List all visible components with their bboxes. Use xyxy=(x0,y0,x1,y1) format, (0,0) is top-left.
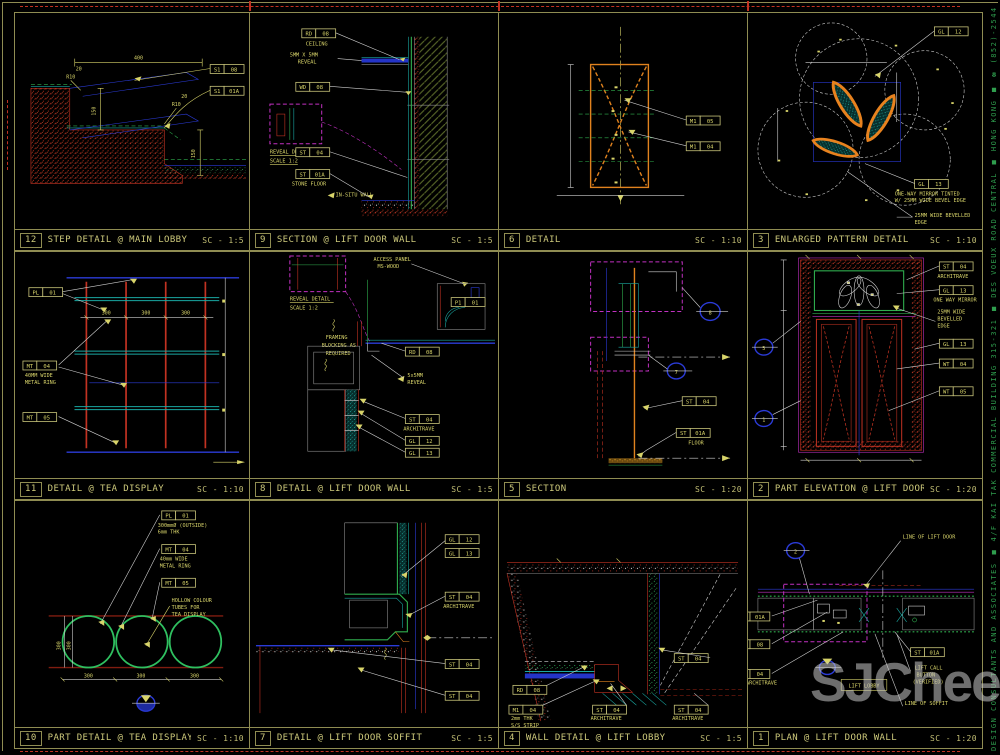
dim-text: 300 xyxy=(67,641,73,650)
ref-tags: RD08 5x5MM REVEAL ST04 ARCHITRAVE GL12 G… xyxy=(356,343,440,457)
svg-text:05: 05 xyxy=(43,415,50,421)
svg-text:ST: ST xyxy=(449,595,456,601)
annotation-text: 6mm THK xyxy=(158,530,181,536)
svg-text:05: 05 xyxy=(182,581,189,587)
detail-title: SECTION xyxy=(526,484,567,494)
svg-text:12: 12 xyxy=(426,439,433,445)
detail-scale: SC - 1:10 xyxy=(197,485,244,494)
ref-tag: GL12 xyxy=(405,436,439,445)
detail-scale: SC - 1:20 xyxy=(695,485,742,494)
panel-6-detail: M105 M104 6 DETAIL SC - 1:10 xyxy=(498,12,748,251)
svg-text:01A: 01A xyxy=(755,615,766,621)
panel-title-bar: 3 ENLARGED PATTERN DETAIL SC - 1:10 xyxy=(748,229,982,250)
svg-text:01A: 01A xyxy=(229,89,240,95)
section-linework xyxy=(591,262,683,465)
svg-text:08: 08 xyxy=(231,67,238,73)
ref-tag: M104 xyxy=(509,705,543,714)
svg-text:01: 01 xyxy=(49,290,56,296)
svg-text:01: 01 xyxy=(472,300,479,306)
annotation-text: 5x5MM xyxy=(407,373,423,379)
drawing-soffit: GL12 GL13 ST04 ARCHITRAVE ST04 ST04 xyxy=(250,501,498,728)
svg-text:S1: S1 xyxy=(214,89,221,95)
detail-scale: SC - 1:10 xyxy=(930,236,977,245)
annotation-text: TUBES FOR xyxy=(172,605,201,611)
svg-text:04: 04 xyxy=(426,417,433,423)
panel-title-bar: 11 DETAIL @ TEA DISPLAY SC - 1:10 xyxy=(15,478,249,499)
annotation-text: MS-WOOD xyxy=(377,264,399,270)
svg-text:RD: RD xyxy=(517,688,524,694)
detail-number: 10 xyxy=(20,731,42,746)
reveal-detail-box: REVEAL DETAIL SCALE 1:2 xyxy=(270,104,401,169)
detail-title: STEP DETAIL @ MAIN LOBBY xyxy=(48,235,188,245)
detail-number: 1 xyxy=(753,731,769,746)
architrave-profile: P101 xyxy=(437,284,485,330)
door-frame xyxy=(799,258,924,455)
svg-text:MT: MT xyxy=(165,547,172,553)
callout-number: 1 xyxy=(762,418,765,424)
panel-11-tea-display-detail: 300 300 300 PL01 MT04 40MM WIDE METAL RI… xyxy=(14,251,250,500)
dim-text: 150 xyxy=(191,149,197,158)
svg-text:ST: ST xyxy=(596,708,603,714)
drawing-section: 8 7 ST04 ST01A FLOOR xyxy=(499,252,747,479)
svg-text:08: 08 xyxy=(534,688,541,694)
annotation-text: STONE FLOOR xyxy=(292,181,327,187)
ref-tag: RD08 xyxy=(405,347,439,356)
dim-text: R10 xyxy=(172,102,181,108)
dim-text: 300 xyxy=(57,641,63,650)
ref-tag: GL13 xyxy=(939,286,973,295)
red-tick xyxy=(249,1,251,11)
detail-scale: SC - 1:5 xyxy=(451,236,493,245)
left-margin-red-text xyxy=(7,100,8,170)
annotation-text: SCALE 1:2 xyxy=(270,159,298,165)
section-marker xyxy=(132,695,160,711)
dim-text: 20 xyxy=(181,94,187,100)
svg-text:04: 04 xyxy=(466,662,473,668)
ref-tag: ST04 xyxy=(939,262,973,271)
ref-tag: ST04 xyxy=(445,592,479,601)
detail-number: 7 xyxy=(255,731,271,746)
detail-number: 8 xyxy=(255,482,271,497)
svg-text:M1: M1 xyxy=(690,145,697,151)
drawing-elevation: 5 1 ST04 ARCHITRAVE GL13 ONE WAY MIRROR … xyxy=(748,252,982,479)
svg-text:ST: ST xyxy=(409,417,416,423)
sheet-left-border xyxy=(2,2,3,751)
ref-tag: P101 xyxy=(451,298,485,307)
sheet-bottom-red-dashes xyxy=(20,751,960,752)
red-tick xyxy=(747,1,749,11)
svg-text:01: 01 xyxy=(182,514,189,520)
svg-text:04: 04 xyxy=(757,672,764,678)
watermark: SJCheese xyxy=(810,650,1000,714)
panel-2-lift-door-elevation: 5 1 ST04 ARCHITRAVE GL13 ONE WAY MIRROR … xyxy=(747,251,983,500)
panel-5-section: 8 7 ST04 ST01A FLOOR 5 SECTION SC - 1:20 xyxy=(498,251,748,500)
svg-text:GL: GL xyxy=(943,342,950,348)
svg-text:GL: GL xyxy=(409,439,416,445)
annotation-text: EDGE xyxy=(937,323,949,329)
svg-text:05: 05 xyxy=(960,390,967,396)
drawing-detail: REVEAL DETAIL SCALE 1:2 ACCESS PANEL MS-… xyxy=(250,252,498,479)
ref-tag: ST04 xyxy=(445,660,479,669)
detail-title: PLAN @ LIFT DOOR WALL xyxy=(775,733,897,743)
detail-title: PART DETAIL @ TEA DISPLAY xyxy=(48,733,191,743)
svg-text:08: 08 xyxy=(322,32,329,38)
ref-tag: M104 xyxy=(686,142,720,151)
annotation-text: ACCESS PANEL xyxy=(374,257,411,263)
annotation-text: REVEAL DETAIL xyxy=(290,297,330,303)
annotation-text: REVEAL xyxy=(298,60,317,66)
detail-title: SECTION @ LIFT DOOR WALL xyxy=(277,235,417,245)
ref-tags: RD08 CEILING 5MM X 5MM REVEAL WD08 ST04 … xyxy=(290,29,412,199)
callout-number: 5 xyxy=(762,346,765,352)
detail-number: 6 xyxy=(504,233,520,248)
svg-text:RD: RD xyxy=(409,350,416,356)
svg-text:S1: S1 xyxy=(214,67,221,73)
sheet-top-red-dashes xyxy=(20,6,960,7)
wall-hatch xyxy=(362,37,450,216)
panel-4-lift-lobby-wall-detail: RD08 M104 2mm THK S/S STRIP ST04 ARCHITR… xyxy=(498,500,748,749)
svg-text:M1: M1 xyxy=(690,119,697,125)
drawing-tubes: 300 300 300 300 300 PL01 300mmØ (OUTSIDE… xyxy=(15,501,249,728)
detail-scale: SC - 1:20 xyxy=(930,485,977,494)
ref-tag: GL13 xyxy=(939,339,973,348)
annotation-text: 2mm THK xyxy=(511,716,534,722)
panel-title-bar: 5 SECTION SC - 1:20 xyxy=(499,478,747,499)
drawing-section: REVEAL DETAIL SCALE 1:2 RD08 CEILING 5MM… xyxy=(250,13,498,230)
ref-tag: PL01 xyxy=(162,511,196,520)
annotation-text: ONE WAY MIRROR xyxy=(933,298,977,304)
svg-text:12: 12 xyxy=(466,537,473,543)
detail-scale: SC - 1:5 xyxy=(451,734,493,743)
ref-tag: GL13 xyxy=(445,549,479,558)
detail-title: ENLARGED PATTERN DETAIL xyxy=(775,235,909,245)
annotation-text: ONE-WAY MIRROR TINTED xyxy=(895,191,960,197)
ref-tag: RD08 xyxy=(513,685,547,694)
annotation-text: ARCHITRAVE xyxy=(591,716,622,722)
annotation-text: 5MM X 5MM xyxy=(290,53,318,59)
ref-tag: ST01A xyxy=(748,612,770,621)
annotation-text: 25MM WIDE xyxy=(937,309,965,315)
svg-text:P1: P1 xyxy=(455,300,462,306)
panel-title-bar: 8 DETAIL @ LIFT DOOR WALL SC - 1:5 xyxy=(250,478,498,499)
svg-text:GL: GL xyxy=(409,451,416,457)
red-tick xyxy=(498,1,500,11)
ref-tag: RD08 xyxy=(302,29,336,38)
detail-number: 5 xyxy=(504,482,520,497)
annotation-text: FLOOR xyxy=(688,440,704,446)
drawing-step-detail: 400 150 150 R10 R10 20 20 S108 S101A xyxy=(15,13,249,230)
detail-number: 3 xyxy=(753,233,769,248)
svg-text:ST: ST xyxy=(678,656,685,662)
ref-tag: GL12 xyxy=(934,27,968,36)
ref-tag: ST04 xyxy=(405,415,439,424)
svg-text:04: 04 xyxy=(960,265,967,271)
panel-title-bar: 4 WALL DETAIL @ LIFT LOBBY SC - 1:5 xyxy=(499,727,747,748)
right-margin: DESIGN CONSULTANTS AND ASSOCIATES ■ 4/F … xyxy=(984,0,1000,755)
svg-text:ST: ST xyxy=(678,708,685,714)
svg-text:04: 04 xyxy=(316,151,323,157)
detail-number: 11 xyxy=(20,482,42,497)
dim-text: 150 xyxy=(92,107,98,116)
svg-text:ST: ST xyxy=(299,151,306,157)
transom-leaf-pattern xyxy=(836,274,882,310)
firm-address-text: DESIGN CONSULTANTS AND ASSOCIATES ■ 4/F … xyxy=(990,6,998,751)
panel-title-bar: 1 PLAN @ LIFT DOOR WALL SC - 1:20 xyxy=(748,727,982,748)
detail-title: DETAIL @ TEA DISPLAY xyxy=(48,484,164,494)
dimensions: 300 300 300 300 300 xyxy=(57,616,224,681)
svg-text:WD: WD xyxy=(299,85,306,91)
annotation-text: 40MM WIDE xyxy=(25,373,53,379)
svg-text:ST: ST xyxy=(680,431,687,437)
drawing-grid: 300 300 300 PL01 MT04 40MM WIDE METAL RI… xyxy=(15,252,249,479)
panel-title-bar: 7 DETAIL @ LIFT DOOR SOFFIT SC - 1:5 xyxy=(250,727,498,748)
svg-text:08: 08 xyxy=(757,643,764,649)
svg-text:12: 12 xyxy=(955,30,962,36)
ref-tag: WD08 xyxy=(296,82,330,91)
svg-text:ST: ST xyxy=(299,172,306,178)
sheet-top-border xyxy=(2,2,998,3)
panel-title-bar: 2 PART ELEVATION @ LIFT DOOR SC - 1:20 xyxy=(748,478,982,499)
annotation-text: EDGE xyxy=(915,220,927,226)
ref-tag: MT04 xyxy=(23,361,57,370)
ref-tag: S101A xyxy=(210,86,244,95)
ref-tag: MT05 xyxy=(23,413,57,422)
ref-tag: ST04 xyxy=(445,691,479,700)
svg-text:04: 04 xyxy=(695,656,702,662)
svg-text:ST: ST xyxy=(686,399,693,405)
svg-text:04: 04 xyxy=(707,145,714,151)
svg-text:04: 04 xyxy=(466,595,473,601)
ref-tag: WT04 xyxy=(939,359,973,368)
svg-text:01A: 01A xyxy=(695,431,706,437)
svg-text:PL: PL xyxy=(165,514,172,520)
svg-text:GL: GL xyxy=(449,551,456,557)
svg-text:08: 08 xyxy=(316,85,323,91)
annotation-text: ARCHITRAVE xyxy=(748,680,777,686)
detail-scale: SC - 1:20 xyxy=(930,734,977,743)
svg-text:WT: WT xyxy=(943,390,950,396)
svg-text:05: 05 xyxy=(707,119,714,125)
detail-scale: SC - 1:5 xyxy=(451,485,493,494)
panel-12-step-detail: 400 150 150 R10 R10 20 20 S108 S101A 12 … xyxy=(14,12,250,251)
detail-number: 12 xyxy=(20,233,42,248)
callout-number: 8 xyxy=(709,310,712,316)
annotation-text: W/ 25MM WIDE BEVEL EDGE xyxy=(895,198,966,204)
ref-tags: M105 M104 xyxy=(624,98,720,151)
ref-tag: ST04 xyxy=(748,670,770,679)
svg-text:04: 04 xyxy=(530,708,537,714)
ref-tag: PL01 xyxy=(29,288,63,297)
annotation-text: IN-SITU WALL xyxy=(336,192,373,198)
svg-text:M1: M1 xyxy=(513,708,520,714)
leaf-pattern xyxy=(811,79,899,161)
svg-text:13: 13 xyxy=(935,182,942,188)
detail-scale: SC - 1:10 xyxy=(197,734,244,743)
svg-text:04: 04 xyxy=(695,708,702,714)
panel-title-bar: 6 DETAIL SC - 1:10 xyxy=(499,229,747,250)
detail-scale: SC - 1:10 xyxy=(695,236,742,245)
detail-title: DETAIL xyxy=(526,235,561,245)
ref-tag: MT05 xyxy=(162,578,196,587)
annotation-text: CEILING xyxy=(306,42,328,48)
annotation-text: ARCHITRAVE xyxy=(937,274,968,280)
detail-title: DETAIL @ LIFT DOOR WALL xyxy=(277,484,411,494)
ref-tag: ST04 xyxy=(296,148,330,157)
callout-number: 7 xyxy=(675,370,678,376)
detail-title: PART ELEVATION @ LIFT DOOR xyxy=(775,484,924,494)
drawing-detail: M105 M104 xyxy=(499,13,747,230)
svg-text:MT: MT xyxy=(165,581,172,587)
panel-title-bar: 12 STEP DETAIL @ MAIN LOBBY SC - 1:5 xyxy=(15,229,249,250)
ref-tag: WT05 xyxy=(939,387,973,396)
svg-text:01A: 01A xyxy=(315,172,326,178)
annotation-text: 25MM WIDE BEVELLED xyxy=(915,213,971,219)
callout-number: 2 xyxy=(794,550,797,556)
ref-tag: ST04 xyxy=(674,705,708,714)
svg-text:13: 13 xyxy=(466,551,473,557)
annotation-text: METAL RING xyxy=(160,563,191,569)
svg-text:ST: ST xyxy=(449,694,456,700)
svg-text:PL: PL xyxy=(33,290,40,296)
framing-note: FRAMING BLOCKING AS REQUIRED xyxy=(322,319,356,371)
access-panel-label: ACCESS PANEL MS-WOOD xyxy=(374,257,469,287)
panel-title-bar: 10 PART DETAIL @ TEA DISPLAY SC - 1:10 xyxy=(15,727,249,748)
detail-number: 4 xyxy=(504,731,520,746)
annotation-text: BEVELLED xyxy=(937,316,962,322)
detail-number: 9 xyxy=(255,233,271,248)
wall-plan-linework xyxy=(758,570,974,657)
svg-text:04: 04 xyxy=(182,547,189,553)
ref-tag: ST01A xyxy=(676,428,710,437)
svg-text:MT: MT xyxy=(27,364,34,370)
ref-tags: PL01 300mmØ (OUTSIDE) 6mm THK MT04 40mm … xyxy=(98,511,213,648)
annotation-text: FRAMING xyxy=(326,335,348,341)
dim-text: 400 xyxy=(134,56,143,62)
dim-text: R10 xyxy=(66,74,75,80)
svg-text:08: 08 xyxy=(426,350,433,356)
annotation-text: 300mmØ (OUTSIDE) xyxy=(158,522,208,529)
svg-text:MT: MT xyxy=(27,415,34,421)
svg-text:WT: WT xyxy=(943,362,950,368)
annotation-text: METAL RING xyxy=(25,380,56,386)
dim-text: 300 xyxy=(84,673,93,679)
svg-text:GL: GL xyxy=(943,288,950,294)
ref-tag: GL13 xyxy=(915,179,949,188)
annotation-text: 40mm WIDE xyxy=(160,556,188,562)
annotation-text: HOLLOW COLOUR xyxy=(172,598,213,604)
dim-text: 20 xyxy=(76,66,82,72)
annotation-text: REVEAL xyxy=(407,380,426,386)
dim-text: 300 xyxy=(141,310,150,316)
svg-text:ST: ST xyxy=(943,265,950,271)
annotation-text: LINE OF LIFT DOOR xyxy=(903,535,957,541)
svg-text:13: 13 xyxy=(960,288,967,294)
detail-scale: SC - 1:5 xyxy=(700,734,742,743)
detail-title: WALL DETAIL @ LIFT LOBBY xyxy=(526,733,666,743)
ref-tag: ST04 xyxy=(682,397,716,406)
svg-text:13: 13 xyxy=(960,342,967,348)
dim-text: 300 xyxy=(136,673,145,679)
ref-tag: S108 xyxy=(210,65,244,74)
dim-text: 300 xyxy=(102,310,111,316)
ref-tag: GL12 xyxy=(445,535,479,544)
svg-text:04: 04 xyxy=(703,399,710,405)
ref-tag: M105 xyxy=(686,116,720,125)
panel-8-lift-door-wall-detail: REVEAL DETAIL SCALE 1:2 ACCESS PANEL MS-… xyxy=(249,251,499,500)
panel-9-section-lift-door-wall: REVEAL DETAIL SCALE 1:2 RD08 CEILING 5MM… xyxy=(249,12,499,251)
svg-text:ST: ST xyxy=(449,662,456,668)
linework xyxy=(557,27,684,207)
svg-text:13: 13 xyxy=(426,451,433,457)
drawing-pattern: GL12 GL13 ONE-WAY MIRROR TINTED W/ 25MM … xyxy=(748,13,982,230)
ref-tag: WD08 xyxy=(748,640,770,649)
svg-text:RD: RD xyxy=(305,32,312,38)
detail-title: DETAIL @ LIFT DOOR SOFFIT xyxy=(277,733,422,743)
panel-7-lift-door-soffit-detail: GL12 GL13 ST04 ARCHITRAVE ST04 ST04 7 DE… xyxy=(249,500,499,749)
panel-10-tea-display-part-detail: 300 300 300 300 300 PL01 300mmØ (OUTSIDE… xyxy=(14,500,250,749)
svg-text:04: 04 xyxy=(466,694,473,700)
ref-tag: ST04 xyxy=(674,654,708,663)
annotation-text: ARCHITRAVE xyxy=(403,426,434,432)
drawing-wall-plan: RD08 M104 2mm THK S/S STRIP ST04 ARCHITR… xyxy=(499,501,747,728)
svg-text:04: 04 xyxy=(613,708,620,714)
detail-scale: SC - 1:5 xyxy=(202,236,244,245)
detail-number: 2 xyxy=(753,482,769,497)
annotation-text: ARCHITRAVE xyxy=(443,604,474,610)
svg-text:GL: GL xyxy=(449,537,456,543)
svg-text:04: 04 xyxy=(43,364,50,370)
panel-3-enlarged-pattern: GL12 GL13 ONE-WAY MIRROR TINTED W/ 25MM … xyxy=(747,12,983,251)
annotation-text: ARCHITRAVE xyxy=(672,716,703,722)
panel-title-bar: 9 SECTION @ LIFT DOOR WALL SC - 1:5 xyxy=(250,229,498,250)
dim-text: 300 xyxy=(181,310,190,316)
ref-tags: GL12 GL13 ONE-WAY MIRROR TINTED W/ 25MM … xyxy=(847,27,970,226)
svg-text:GL: GL xyxy=(918,182,925,188)
tube-linework xyxy=(49,616,224,668)
ref-tags: PL01 MT04 40MM WIDE METAL RING MT05 xyxy=(23,279,137,446)
ref-tag: MT04 xyxy=(162,545,196,554)
ref-tag: GL13 xyxy=(405,448,439,457)
wall-linework xyxy=(507,558,744,721)
cad-detail-sheet: 400 150 150 R10 R10 20 20 S108 S101A 12 … xyxy=(0,0,1000,755)
elevation-callouts: 5 1 xyxy=(752,321,801,426)
svg-text:GL: GL xyxy=(938,30,945,36)
dim-text: 300 xyxy=(190,673,199,679)
annotation-text: TEA DISPLAY xyxy=(172,612,206,618)
ref-tag: ST04 xyxy=(593,705,627,714)
ref-tags: ST04 ST01A FLOOR xyxy=(636,397,716,458)
annotation-text: SCALE 1:2 xyxy=(290,306,318,312)
svg-text:04: 04 xyxy=(960,362,967,368)
ref-tag: ST01A xyxy=(296,170,330,179)
